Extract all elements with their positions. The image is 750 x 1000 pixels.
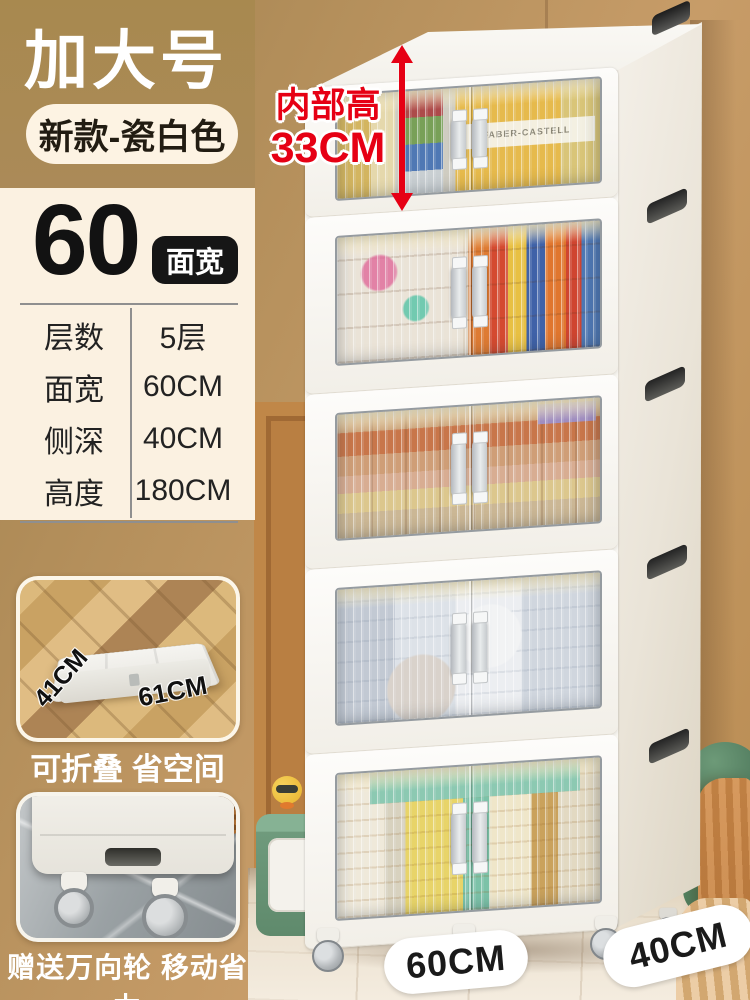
door-handle <box>451 263 466 322</box>
header-block: 加大号 新款-瓷白色 <box>0 0 255 188</box>
side-handle-cutout <box>647 543 687 581</box>
side-handle-cutout <box>649 727 689 765</box>
caster-tyre <box>312 940 344 972</box>
tier-4-door-window <box>335 570 602 726</box>
folded-cabinet-photo: 41CM 61CM <box>16 576 240 742</box>
spec-row-depth: 侧深 40CM <box>20 413 238 465</box>
door-handle <box>472 438 487 497</box>
wheels-photo <box>16 792 240 942</box>
fold-caption: 可折叠 省空间 <box>0 744 255 789</box>
caster-wheel <box>54 872 94 928</box>
door-handles <box>451 808 487 868</box>
door-handle <box>472 618 487 677</box>
door-handles <box>451 618 487 678</box>
door-handle <box>472 114 487 161</box>
cabinet-tier-5 <box>305 734 618 950</box>
cabinet-side-panel <box>605 0 702 950</box>
door-handle <box>472 808 487 867</box>
spec-value: 5层 <box>128 313 238 357</box>
internal-height-label: 内部高 <box>260 86 396 126</box>
wheels-caption: 赠送万向轮 移动省力 <box>0 946 255 1000</box>
kick-notch <box>105 848 161 866</box>
door-handle <box>451 116 466 163</box>
size-badge: 加大号 <box>24 10 244 102</box>
cabinet-crease <box>40 834 226 836</box>
spec-value: 180CM <box>128 474 238 508</box>
caster-wheel <box>142 878 188 940</box>
tier-3-door-window <box>335 395 602 541</box>
caster-tyre <box>142 894 188 940</box>
side-handle-cutout <box>647 187 687 225</box>
spec-label: 层数 <box>20 313 128 357</box>
caster-wheel <box>310 928 346 974</box>
duck-toy-goggles <box>276 785 298 793</box>
door-handles <box>451 262 487 322</box>
spec-row-layers: 层数 5层 <box>20 309 238 361</box>
variant-badge: 新款-瓷白色 <box>26 104 238 164</box>
door-handles <box>451 438 487 498</box>
spec-panel: 60 面宽 层数 5层 面宽 60CM 侧深 40CM 高度 180CM <box>0 188 255 520</box>
spec-label: 高度 <box>20 469 128 513</box>
cabinet-tier-4 <box>305 549 618 755</box>
width-number: 60 <box>32 188 139 293</box>
door-handle <box>451 809 466 868</box>
spec-table: 层数 5层 面宽 60CM 侧深 40CM 高度 180CM <box>20 303 238 523</box>
spec-value: 60CM <box>128 370 238 404</box>
cabinet-bottom <box>32 792 234 874</box>
product-image: FABER-CASTELL <box>0 0 750 1000</box>
spec-label: 侧深 <box>20 417 128 461</box>
side-handle-cutout <box>645 365 685 403</box>
door-handle <box>451 439 466 498</box>
spec-row-width: 面宽 60CM <box>20 361 238 413</box>
spec-row-height: 高度 180CM <box>20 465 238 517</box>
internal-height-annotation: 内部高 33CM <box>260 86 396 171</box>
door-handle <box>451 619 466 678</box>
internal-height-value: 33CM <box>260 126 396 171</box>
cabinet-front: FABER-CASTELL <box>305 67 618 950</box>
cabinet-tier-3 <box>305 374 618 570</box>
height-arrow-icon <box>399 62 405 194</box>
duck-toy-beak <box>280 802 294 809</box>
caster-tyre <box>54 888 94 928</box>
cabinet-tier-2 <box>305 197 618 395</box>
tier-5-door-window <box>335 755 602 921</box>
spec-value: 40CM <box>128 422 238 456</box>
duck-toy <box>270 776 304 816</box>
info-sidebar: 加大号 新款-瓷白色 60 面宽 层数 5层 面宽 60CM 侧深 40CM <box>0 0 255 1000</box>
door-handles <box>451 114 487 162</box>
tier-2-door-window <box>335 218 602 366</box>
door-handle <box>472 262 487 321</box>
width-unit-badge: 面宽 <box>152 236 238 284</box>
spec-label: 面宽 <box>20 365 128 409</box>
